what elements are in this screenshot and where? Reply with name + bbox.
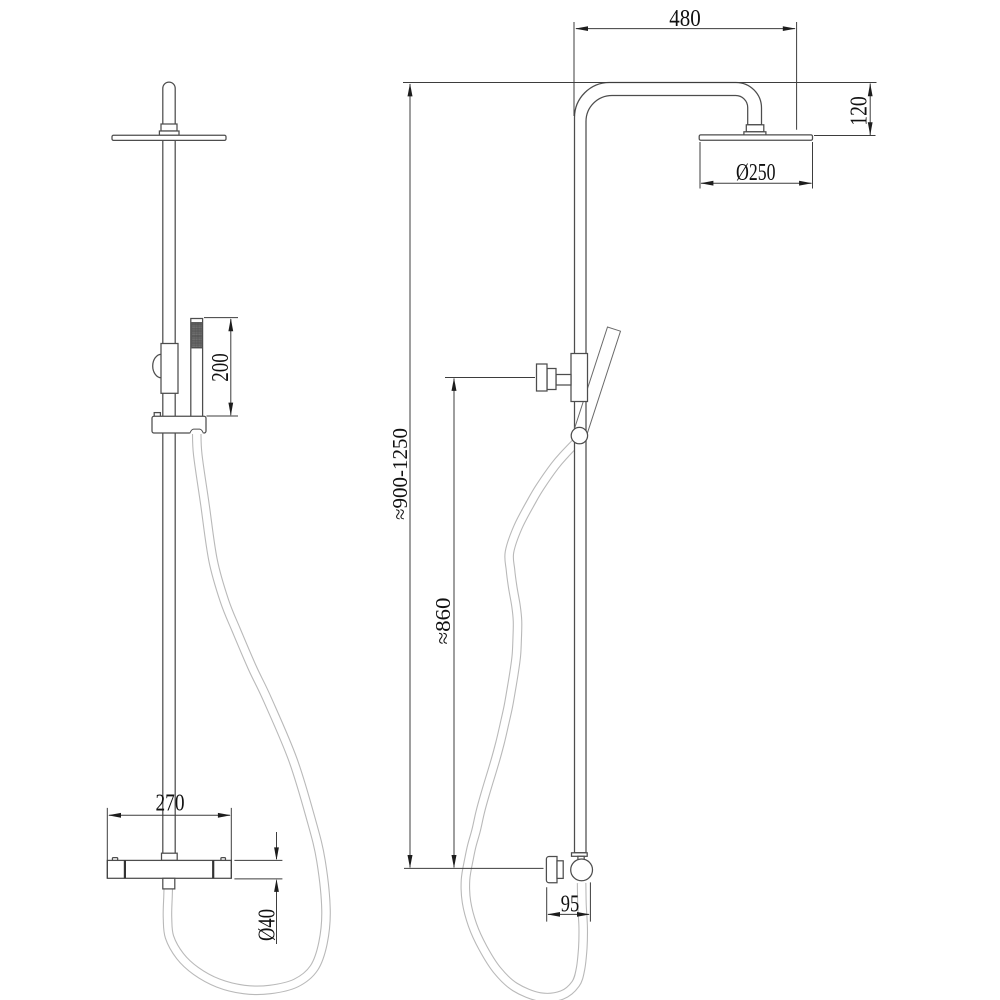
svg-text:200: 200 xyxy=(207,353,234,382)
svg-text:270: 270 xyxy=(156,790,185,817)
svg-text:120: 120 xyxy=(846,96,873,126)
svg-text:Ø40: Ø40 xyxy=(254,909,281,941)
svg-text:Ø250: Ø250 xyxy=(736,159,776,186)
svg-text:480: 480 xyxy=(669,5,701,32)
svg-text:≈860: ≈860 xyxy=(431,598,455,645)
svg-text:≈900-1250: ≈900-1250 xyxy=(388,428,412,520)
svg-text:95: 95 xyxy=(561,891,580,918)
